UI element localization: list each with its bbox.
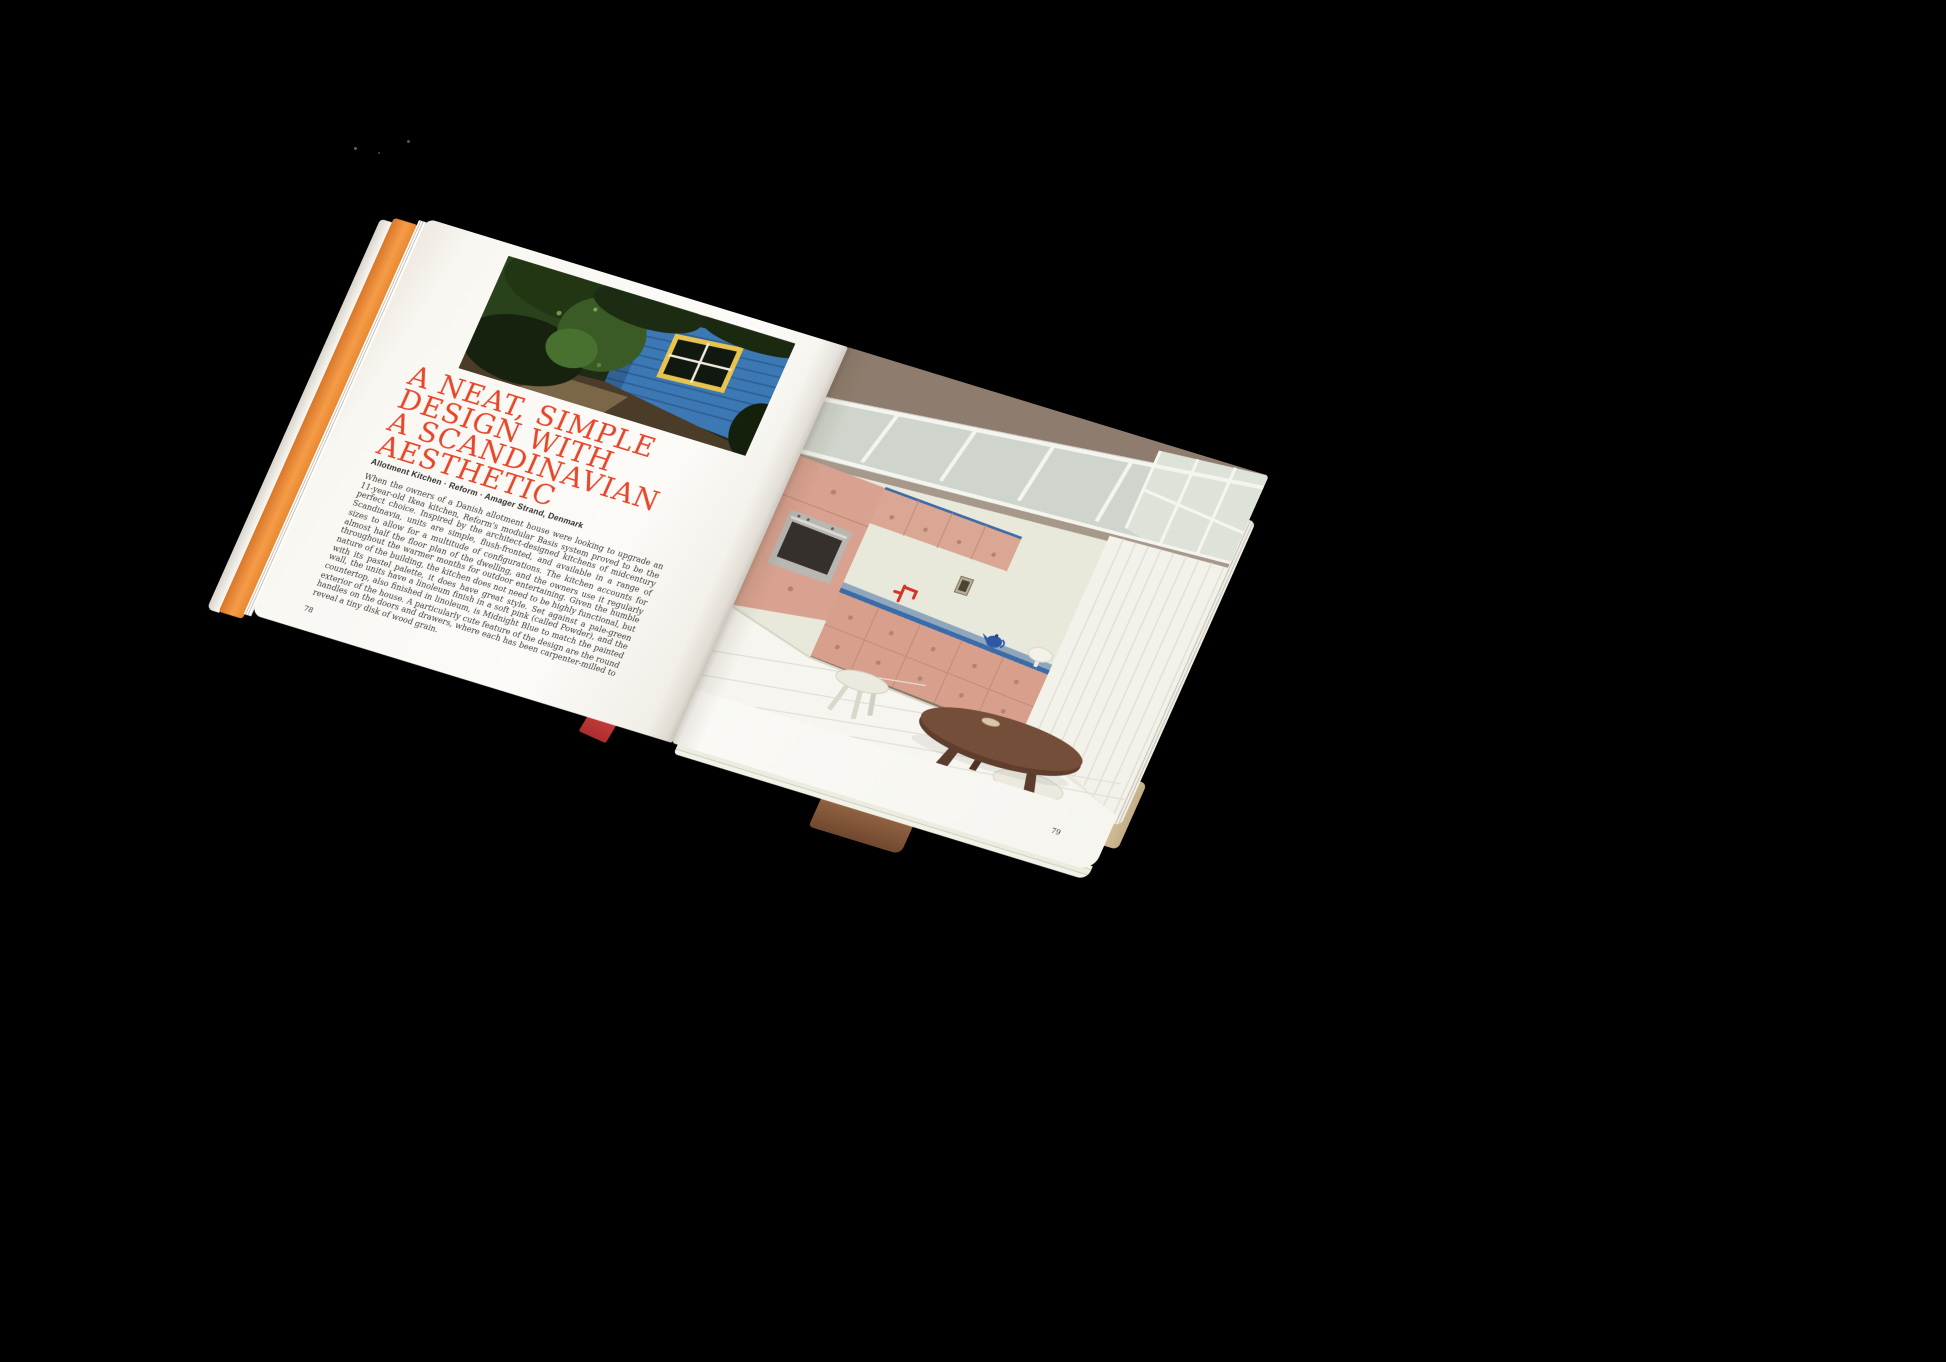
page-number-left: 78 — [302, 604, 315, 615]
dust-speck — [354, 147, 357, 150]
dust-speck — [407, 140, 410, 143]
photo-stage: A NEAT, SIMPLE DESIGN WITH A SCANDINAVIA… — [0, 0, 1946, 1362]
open-book: A NEAT, SIMPLE DESIGN WITH A SCANDINAVIA… — [251, 218, 1269, 871]
dust-speck — [378, 152, 380, 154]
page-number-right: 79 — [1049, 826, 1062, 837]
